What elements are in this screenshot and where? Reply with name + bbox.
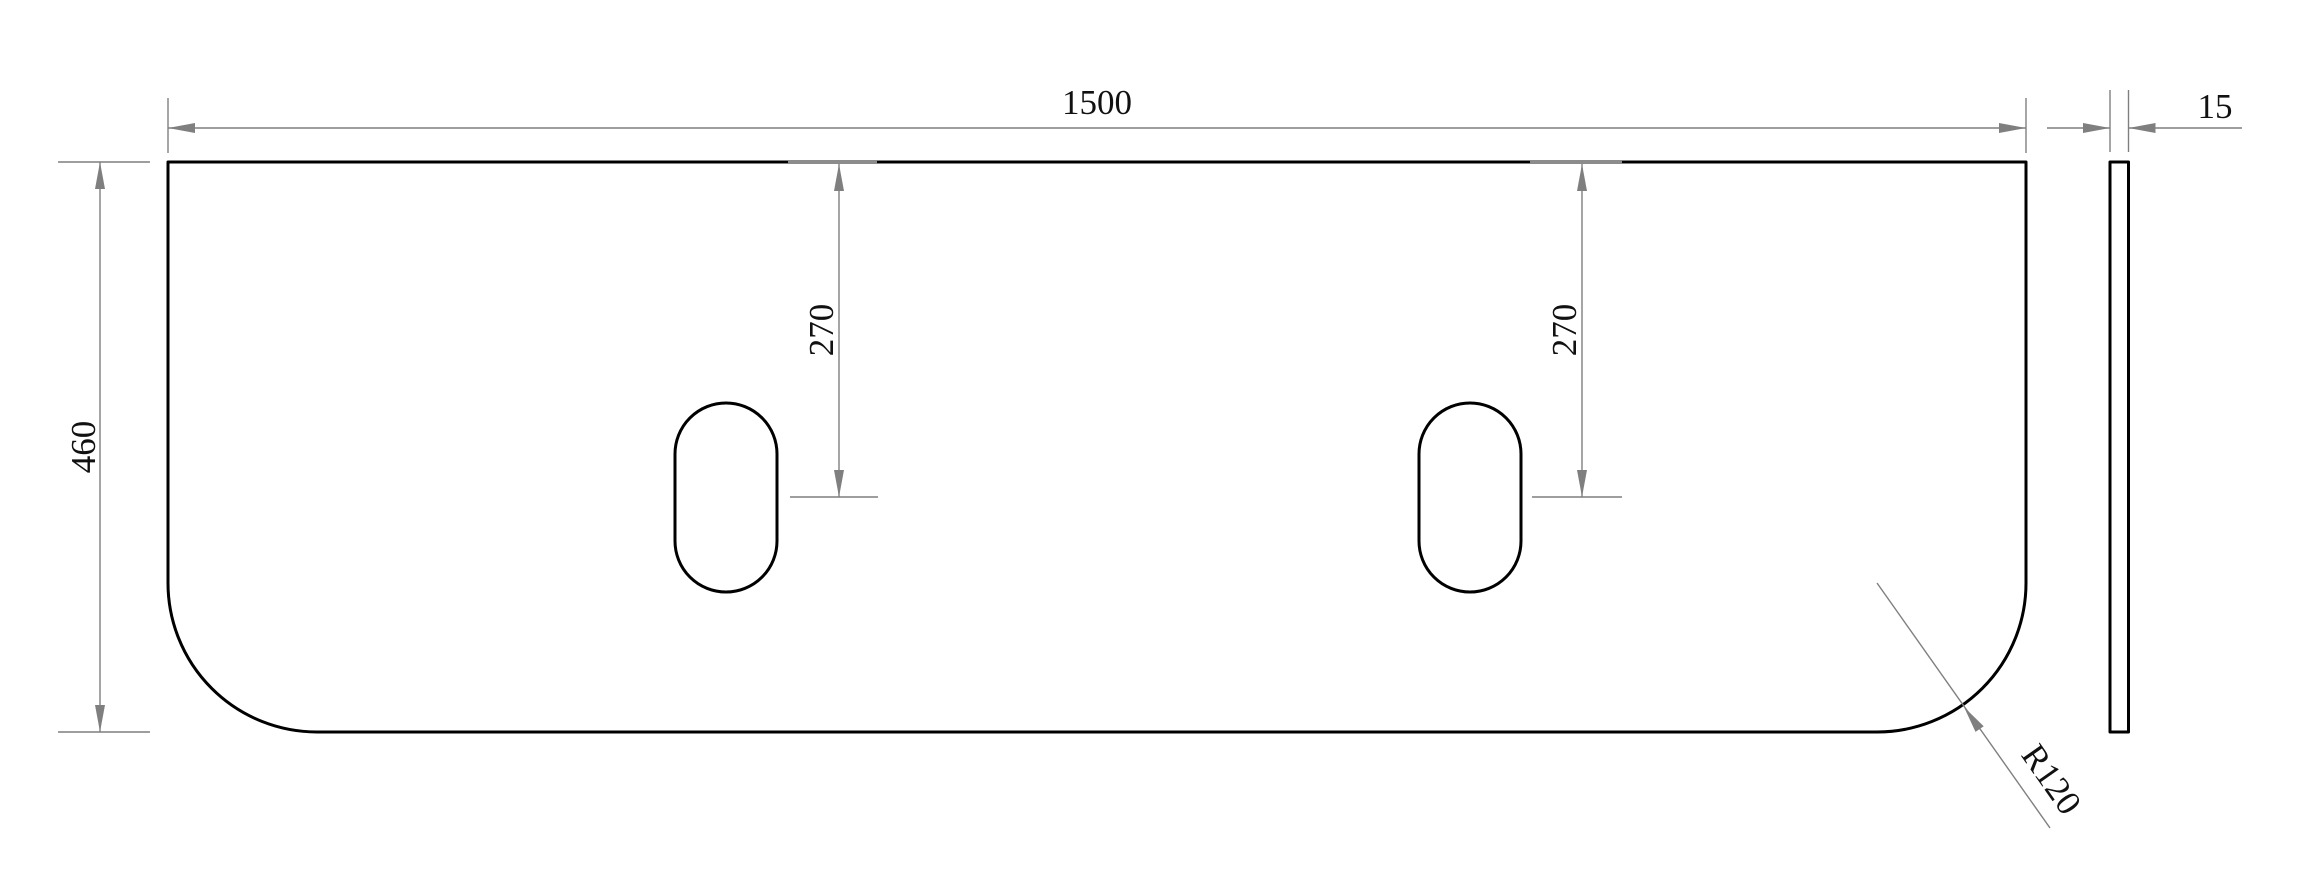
front-view (168, 162, 2026, 732)
side-view (2110, 162, 2129, 732)
slot-right-cutout (1419, 403, 1521, 592)
width-dimension-label: 1500 (1062, 83, 1132, 122)
height-dimension-label: 460 (64, 421, 103, 474)
arrowhead-up-icon (1577, 164, 1587, 191)
panel-outline (168, 162, 2026, 732)
arrowhead-down-icon (95, 705, 105, 732)
arrowhead-up-icon (95, 162, 105, 189)
arrowhead-right-icon (1999, 123, 2026, 133)
technical-drawing-canvas: 1500 460 270 270 (0, 0, 2308, 890)
corner-radius-label: R120 (2014, 737, 2089, 822)
dimension-height: 460 (58, 162, 150, 732)
thickness-dimension-label: 15 (2198, 87, 2233, 126)
arrowhead-up-icon (834, 164, 844, 191)
arrowhead-left-icon (2129, 123, 2156, 133)
drawing-sheet: 1500 460 270 270 (0, 0, 2308, 890)
side-profile-outline (2110, 162, 2129, 732)
dimension-slot-right-offset: 270 (1530, 162, 1622, 497)
dimension-thickness: 15 (2047, 87, 2242, 152)
slot-left-offset-label: 270 (802, 304, 841, 357)
radius-leader-line (1877, 583, 2050, 828)
arrowhead-radius-icon (1964, 707, 1984, 732)
arrowhead-down-icon (1577, 470, 1587, 497)
slot-left-cutout (675, 403, 777, 592)
dimension-slot-left-offset: 270 (788, 162, 878, 497)
dimension-width: 1500 (168, 83, 2026, 153)
arrowhead-left-icon (168, 123, 195, 133)
dimension-corner-radius: R120 (1877, 583, 2089, 828)
arrowhead-down-icon (834, 470, 844, 497)
slot-right-offset-label: 270 (1545, 304, 1584, 357)
arrowhead-right-icon (2083, 123, 2110, 133)
